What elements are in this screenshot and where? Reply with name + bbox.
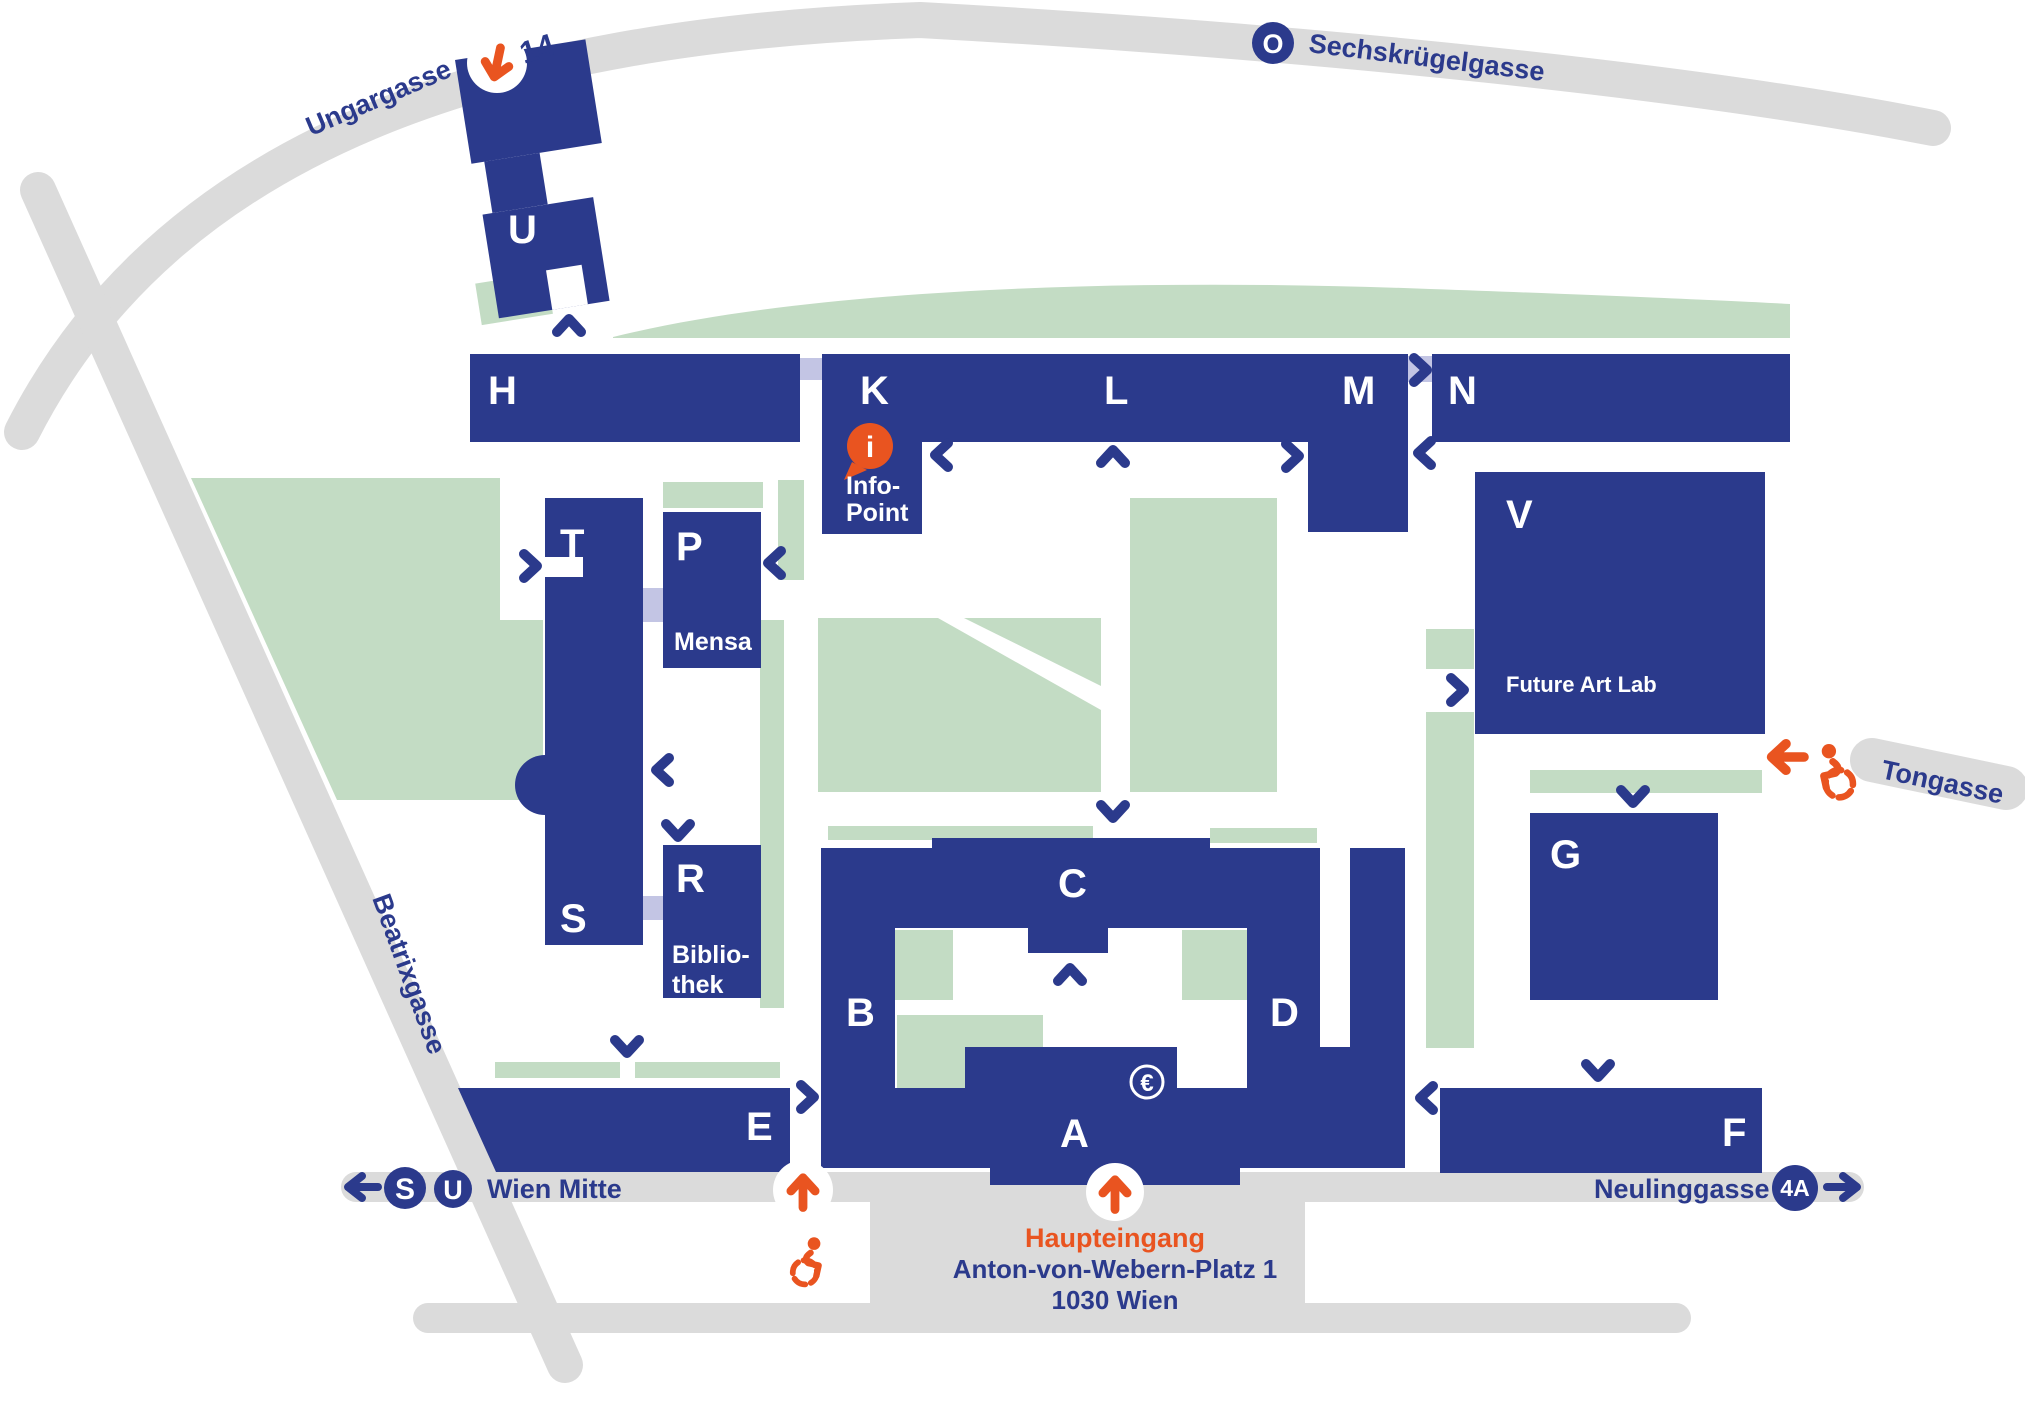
building-m-wing xyxy=(1308,442,1408,532)
bus-4a-label: 4A xyxy=(1780,1175,1809,1201)
label-building-c: C xyxy=(1058,862,1087,906)
info-icon-letter: i xyxy=(866,431,874,464)
building-e xyxy=(458,1088,790,1172)
green-central-right xyxy=(1130,498,1277,792)
label-future-art-lab: Future Art Lab xyxy=(1506,672,1657,697)
green-east-band-lower xyxy=(1426,712,1474,1048)
tongasse-arrow-west xyxy=(1772,744,1804,770)
chevron-down-c-path xyxy=(1101,805,1125,818)
chevron-left-s xyxy=(656,758,669,782)
building-f xyxy=(1440,1088,1762,1173)
green-strip-above-c-left xyxy=(828,826,1093,840)
label-building-u: U xyxy=(508,208,537,252)
label-building-v: V xyxy=(1506,493,1533,537)
tram-o-label: O xyxy=(1262,29,1283,59)
campus-map: 14 O S U 4A i € xyxy=(0,0,2025,1414)
sbahn-label: S xyxy=(395,1173,415,1206)
label-building-g: G xyxy=(1550,833,1581,877)
wheelchair-icon-south xyxy=(793,1237,821,1284)
label-building-s: S xyxy=(560,897,587,941)
label-building-f: F xyxy=(1722,1111,1746,1155)
label-street-neulinggasse: Neulinggasse xyxy=(1594,1174,1770,1204)
chevron-left-n xyxy=(1418,441,1431,465)
label-info-line2: Point xyxy=(846,499,909,527)
building-d-slot xyxy=(1320,848,1350,1047)
label-bibliothek-line1: Biblio- xyxy=(672,941,750,969)
green-central-left xyxy=(818,618,1101,792)
green-courtyard-upper-right xyxy=(1182,930,1247,1000)
label-building-m: M xyxy=(1342,369,1375,413)
label-building-l: L xyxy=(1104,369,1128,413)
green-east-band-upper xyxy=(1426,629,1474,669)
label-building-p: P xyxy=(676,525,703,569)
green-strip-above-e-right xyxy=(635,1062,780,1078)
building-complex-abcd xyxy=(821,838,1405,1185)
building-u-group xyxy=(440,39,627,325)
green-strip-right-of-r xyxy=(760,620,784,1008)
label-building-b: B xyxy=(846,991,875,1035)
connector-t-p xyxy=(643,588,665,622)
label-mensa: Mensa xyxy=(674,628,753,656)
label-building-e: E xyxy=(746,1105,773,1149)
label-street-sechskruegelgasse: Sechskrügelgasse xyxy=(1307,28,1546,87)
label-address-line1: Anton-von-Webern-Platz 1 xyxy=(953,1254,1278,1284)
chevron-left-k xyxy=(935,443,948,467)
label-bibliothek-line2: thek xyxy=(672,971,724,999)
building-u-notch xyxy=(546,265,588,310)
connector-s-r xyxy=(643,896,665,920)
chevron-down-f xyxy=(1586,1064,1610,1077)
building-h xyxy=(470,354,800,442)
chevron-down-e xyxy=(615,1040,639,1053)
label-building-n: N xyxy=(1448,369,1477,413)
chevron-right-t xyxy=(524,554,537,578)
chevron-down-r xyxy=(666,824,690,837)
building-u-bottom xyxy=(483,197,610,318)
green-strip-right-of-p xyxy=(778,480,804,580)
label-haupteingang: Haupteingang xyxy=(1025,1223,1205,1253)
label-building-r: R xyxy=(676,857,705,901)
chevron-right-v xyxy=(1451,678,1464,702)
wheelchair-icon-tongasse xyxy=(1822,744,1853,797)
euro-icon-symbol: € xyxy=(1140,1070,1153,1097)
chevron-right-m xyxy=(1286,444,1299,468)
label-building-a: A xyxy=(1060,1112,1089,1156)
building-u-mid xyxy=(484,153,547,213)
chevron-right-e xyxy=(801,1085,814,1109)
label-building-t: T xyxy=(560,522,584,566)
chevron-left-f xyxy=(1420,1086,1433,1110)
label-info-line1: Info- xyxy=(846,472,900,500)
connector-h-k xyxy=(800,358,824,380)
ubahn-label: U xyxy=(443,1175,463,1205)
green-top-band xyxy=(613,285,1790,338)
green-courtyard-upper-left xyxy=(895,930,953,1000)
label-building-h: H xyxy=(488,369,517,413)
label-building-d: D xyxy=(1270,991,1299,1035)
chevron-up-l xyxy=(1101,450,1125,463)
green-above-p xyxy=(663,482,763,508)
building-n xyxy=(1432,354,1790,442)
label-building-k: K xyxy=(860,369,889,413)
label-street-wien-mitte: Wien Mitte xyxy=(487,1174,622,1204)
chevron-up-u xyxy=(557,319,581,332)
label-address-line2: 1030 Wien xyxy=(1052,1285,1179,1315)
green-strip-above-e-left xyxy=(495,1062,620,1078)
map-svg: 14 O S U 4A i € xyxy=(0,0,2025,1414)
green-strip-above-c-right xyxy=(1210,828,1317,843)
chevron-up-courtyard xyxy=(1058,968,1082,981)
